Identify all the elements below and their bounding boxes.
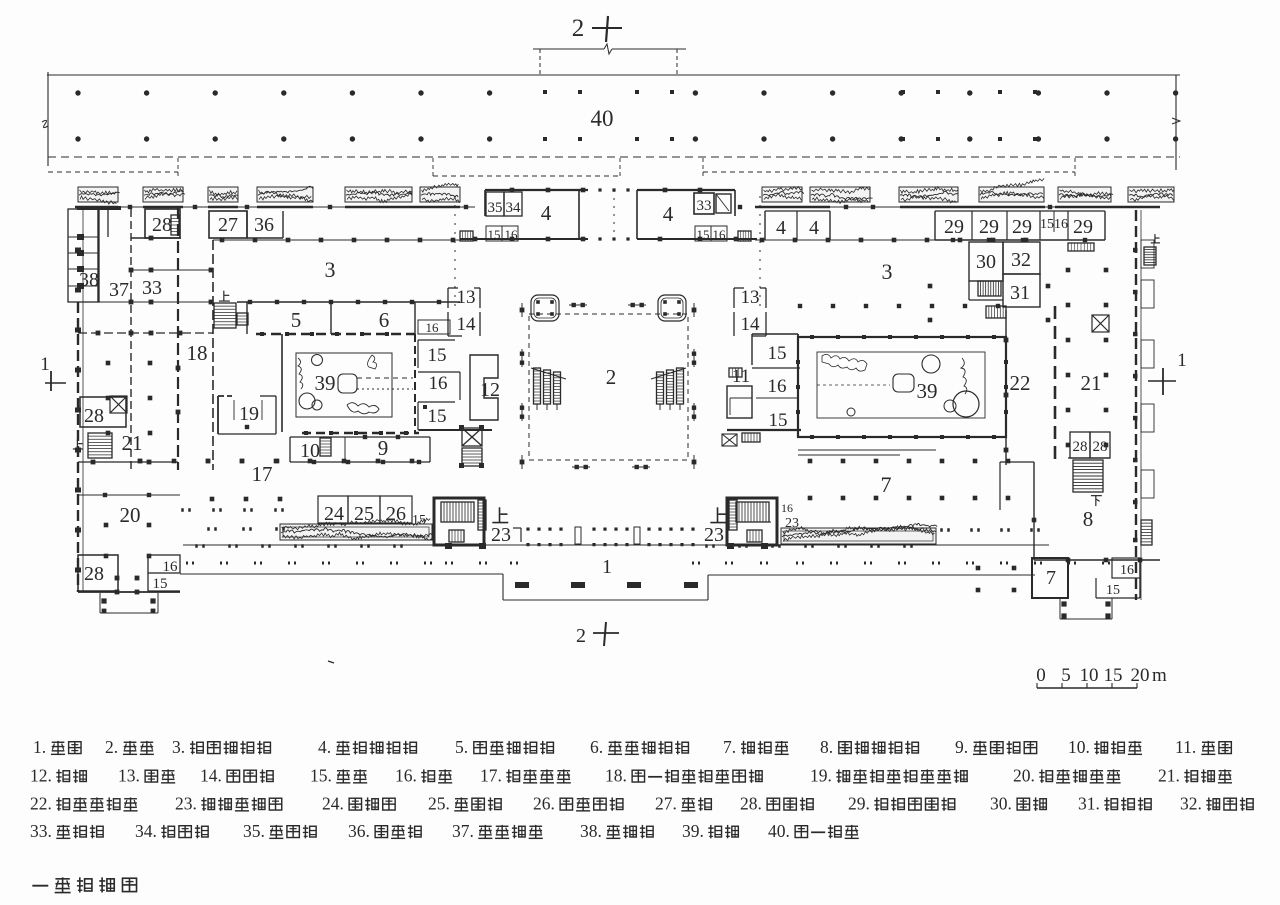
svg-text:28: 28	[84, 563, 104, 585]
svg-text:32.: 32.	[1180, 794, 1202, 814]
svg-text:5.: 5.	[455, 737, 468, 757]
svg-text:15: 15	[1040, 217, 1054, 232]
svg-text:16: 16	[781, 501, 793, 515]
svg-text:7.: 7.	[723, 737, 736, 757]
svg-text:0: 0	[1036, 665, 1046, 686]
svg-text:28: 28	[1073, 439, 1088, 455]
svg-text:1: 1	[40, 354, 50, 375]
svg-text:9.: 9.	[955, 737, 968, 757]
svg-text:40.: 40.	[768, 821, 790, 841]
svg-text:24: 24	[324, 503, 344, 525]
svg-text:15: 15	[697, 227, 710, 242]
svg-text:29.: 29.	[848, 794, 870, 814]
svg-text:29: 29	[979, 216, 999, 238]
svg-text:23: 23	[491, 524, 511, 546]
svg-text:2: 2	[572, 15, 585, 42]
svg-text:5: 5	[1061, 665, 1071, 686]
svg-text:m: m	[1152, 665, 1167, 686]
svg-text:4: 4	[663, 202, 674, 226]
svg-text:37.: 37.	[452, 821, 474, 841]
svg-text:31.: 31.	[1078, 794, 1100, 814]
svg-text:23: 23	[704, 524, 724, 546]
svg-text:33: 33	[697, 198, 712, 214]
svg-text:15: 15	[428, 406, 447, 427]
svg-text:6: 6	[379, 308, 390, 332]
svg-text:15: 15	[769, 410, 788, 431]
svg-text:21.: 21.	[1158, 766, 1180, 786]
svg-text:16: 16	[1054, 217, 1068, 232]
svg-text:20: 20	[120, 503, 141, 527]
svg-text:36.: 36.	[348, 821, 370, 841]
svg-text:21: 21	[122, 431, 143, 455]
svg-text:1: 1	[602, 556, 612, 578]
svg-text:4.: 4.	[318, 737, 331, 757]
svg-text:16.: 16.	[395, 766, 417, 786]
svg-text:32: 32	[1011, 249, 1031, 271]
svg-text:15: 15	[768, 343, 787, 364]
svg-text:7: 7	[1046, 567, 1056, 589]
svg-text:33: 33	[142, 277, 162, 299]
svg-text:9: 9	[378, 436, 389, 460]
svg-text:2: 2	[576, 625, 586, 647]
svg-text:11.: 11.	[1175, 737, 1196, 757]
svg-text:12.: 12.	[30, 766, 52, 786]
svg-text:5: 5	[291, 308, 302, 332]
svg-text:38: 38	[79, 269, 99, 291]
svg-text:16: 16	[768, 376, 787, 397]
svg-text:34: 34	[506, 200, 522, 216]
svg-text:30: 30	[976, 251, 996, 273]
svg-text:22.: 22.	[30, 794, 52, 814]
svg-text:17: 17	[252, 462, 273, 486]
svg-text:10.: 10.	[1068, 737, 1090, 757]
svg-text:1.: 1.	[33, 737, 46, 757]
svg-text:8: 8	[1083, 507, 1094, 531]
svg-text:35: 35	[488, 200, 503, 216]
svg-text:3: 3	[882, 259, 893, 284]
svg-text:29: 29	[1073, 216, 1093, 238]
svg-text:37: 37	[109, 279, 129, 301]
svg-text:26.: 26.	[533, 794, 555, 814]
svg-text:27.: 27.	[655, 794, 677, 814]
svg-text:13: 13	[457, 287, 476, 308]
svg-text:8.: 8.	[820, 737, 833, 757]
svg-text:7: 7	[881, 472, 892, 497]
svg-text:16: 16	[505, 227, 519, 242]
svg-text:28: 28	[152, 214, 172, 236]
svg-text:29: 29	[944, 216, 964, 238]
svg-text:38.: 38.	[580, 821, 602, 841]
svg-text:13: 13	[741, 287, 760, 308]
svg-text:3.: 3.	[172, 737, 185, 757]
svg-text:25.: 25.	[428, 794, 450, 814]
svg-text:20: 20	[1131, 665, 1150, 686]
svg-text:4: 4	[776, 217, 786, 239]
svg-text:16: 16	[426, 320, 440, 335]
svg-text:21: 21	[1081, 371, 1102, 395]
svg-text:40: 40	[591, 106, 614, 131]
svg-text:16: 16	[429, 373, 448, 394]
svg-text:14: 14	[457, 314, 477, 335]
svg-text:34.: 34.	[135, 821, 157, 841]
svg-text:3: 3	[325, 257, 336, 282]
svg-text:16: 16	[163, 559, 179, 575]
svg-text:4: 4	[541, 201, 552, 225]
svg-text:15.: 15.	[310, 766, 332, 786]
svg-text:18: 18	[187, 341, 208, 365]
svg-text:39: 39	[315, 371, 336, 395]
svg-text:14: 14	[741, 314, 761, 335]
svg-text:15: 15	[153, 576, 168, 592]
svg-text:18.: 18.	[605, 766, 627, 786]
svg-text:10: 10	[1080, 665, 1099, 686]
svg-text:31: 31	[1010, 282, 1030, 304]
svg-text:16: 16	[1120, 563, 1134, 578]
svg-text:39.: 39.	[682, 821, 704, 841]
svg-text:28.: 28.	[740, 794, 762, 814]
svg-text:33.: 33.	[30, 821, 52, 841]
svg-text:35.: 35.	[243, 821, 265, 841]
svg-text:27: 27	[218, 214, 238, 236]
svg-text:17.: 17.	[480, 766, 502, 786]
svg-text:28: 28	[84, 405, 104, 427]
svg-text:28: 28	[1093, 439, 1108, 455]
svg-text:15: 15	[1104, 665, 1123, 686]
svg-text:12: 12	[480, 379, 500, 401]
svg-text:15: 15	[488, 227, 501, 242]
svg-text:2: 2	[606, 365, 617, 389]
svg-text:15: 15	[1106, 583, 1120, 598]
svg-text:2.: 2.	[105, 737, 118, 757]
svg-text:13.: 13.	[118, 766, 140, 786]
svg-text:19.: 19.	[810, 766, 832, 786]
svg-text:23.: 23.	[175, 794, 197, 814]
svg-text:15: 15	[428, 345, 447, 366]
svg-text:29: 29	[1012, 216, 1032, 238]
svg-text:20.: 20.	[1013, 766, 1035, 786]
svg-text:1: 1	[1177, 350, 1187, 371]
svg-text:6.: 6.	[590, 737, 603, 757]
svg-text:22: 22	[1010, 371, 1031, 395]
svg-text:4: 4	[809, 217, 819, 239]
svg-text:19: 19	[239, 403, 259, 425]
svg-text:39: 39	[917, 379, 938, 403]
svg-text:23: 23	[785, 516, 799, 531]
svg-text:30.: 30.	[990, 794, 1012, 814]
svg-text:36: 36	[254, 214, 274, 236]
svg-text:24.: 24.	[322, 794, 344, 814]
svg-text:16: 16	[713, 227, 727, 242]
svg-text:14.: 14.	[200, 766, 222, 786]
